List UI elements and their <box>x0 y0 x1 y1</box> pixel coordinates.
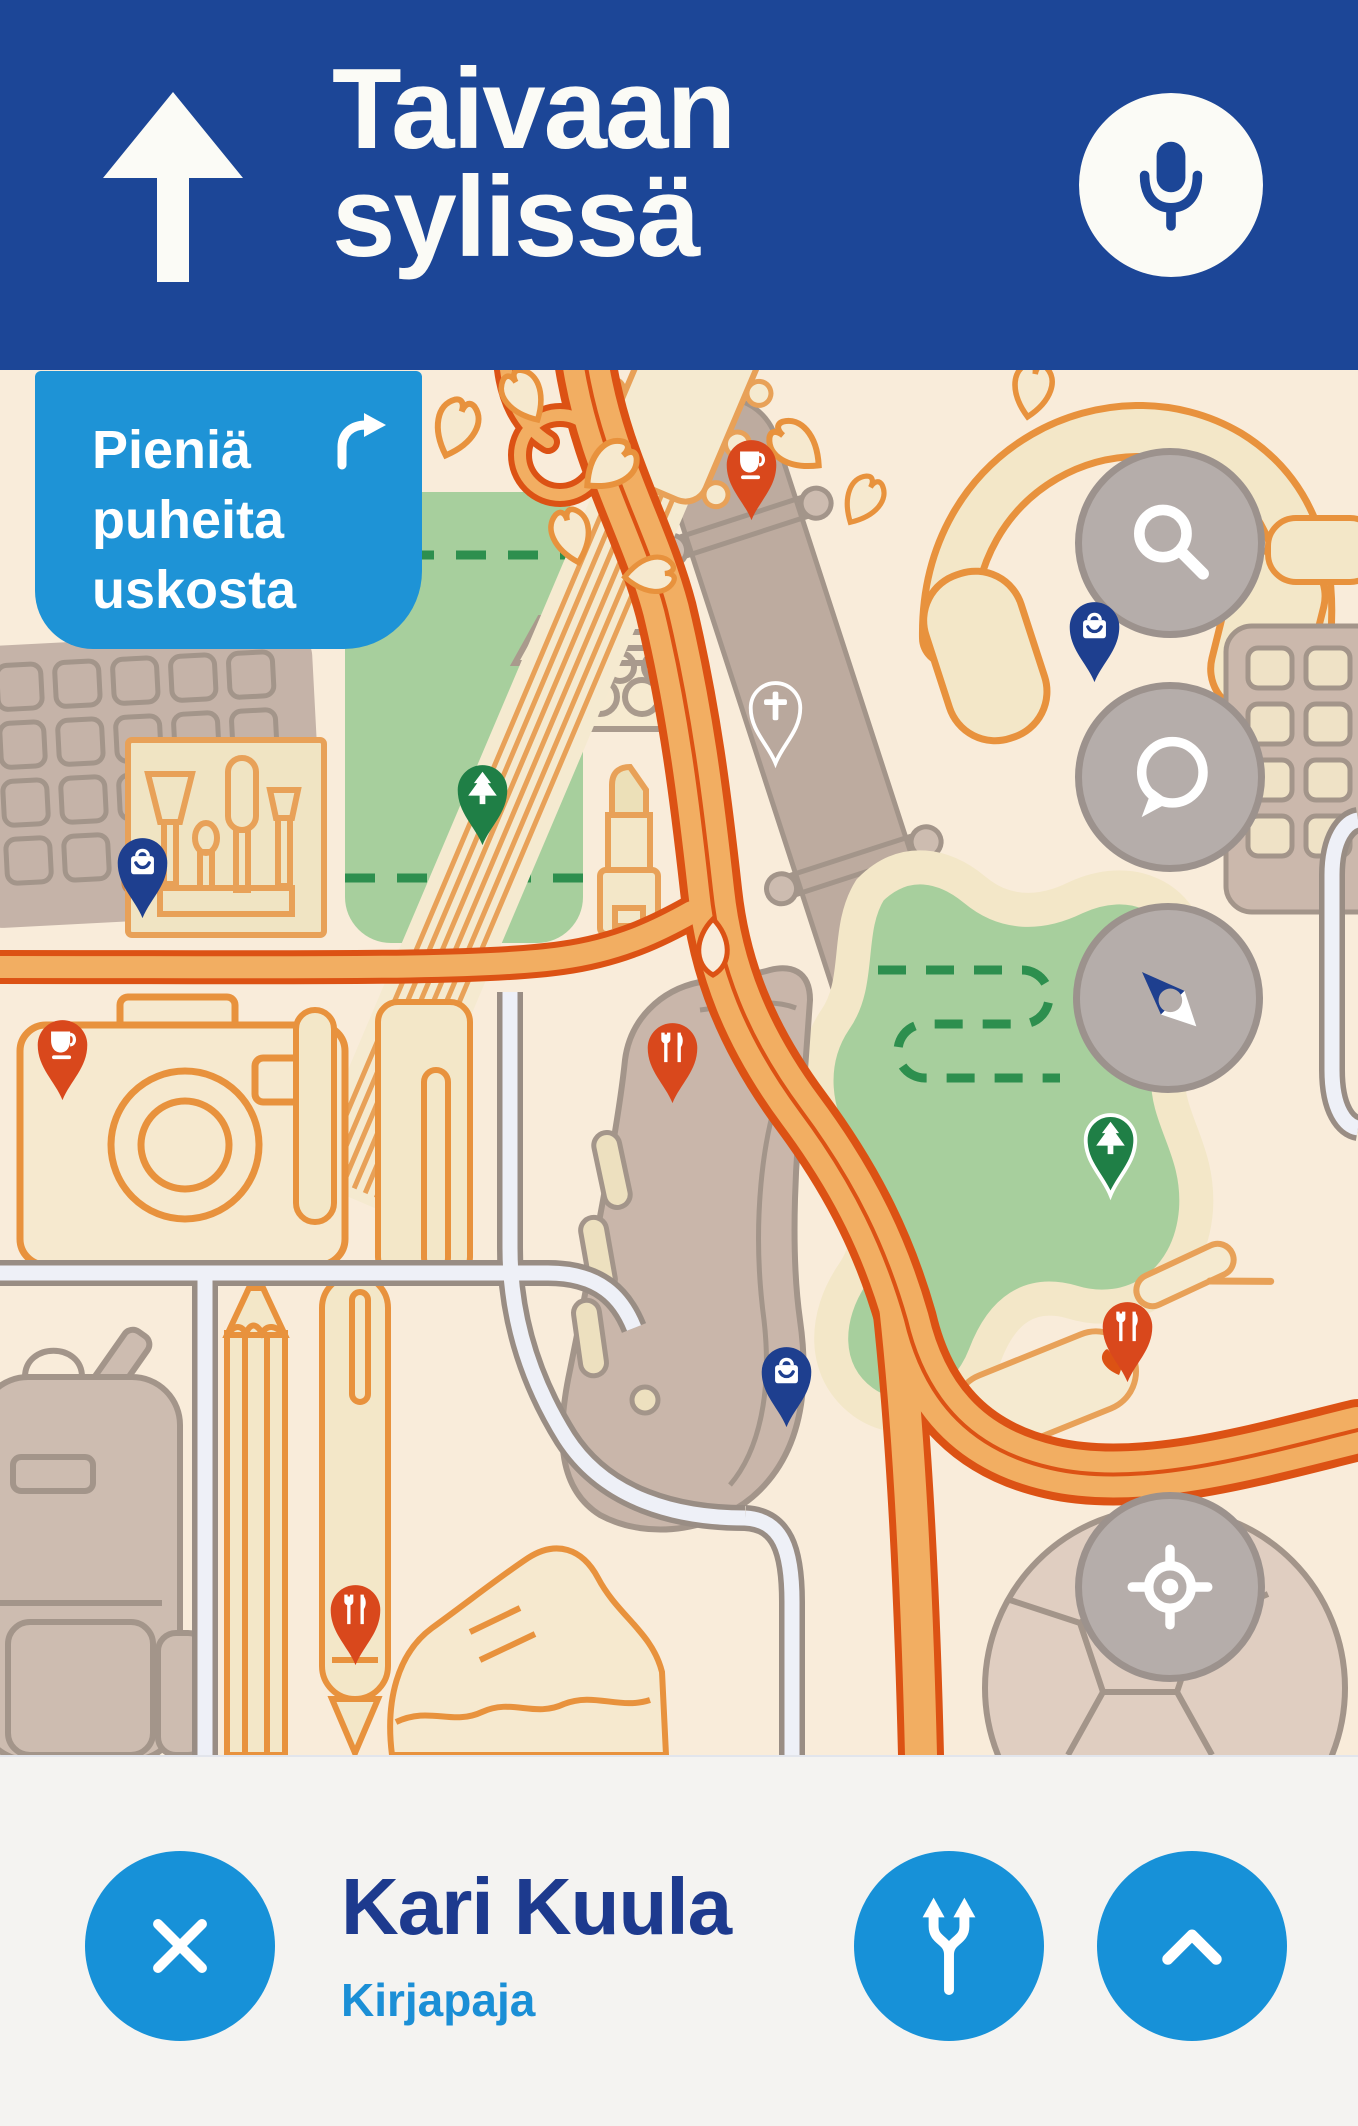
bottom-sheet: Kari Kuula Kirjapaja <box>0 1755 1358 2126</box>
map-pin-restaurant[interactable] <box>1097 1298 1158 1390</box>
chevron-up-icon <box>1137 1891 1247 2001</box>
header: Taivaan sylissä <box>0 0 1358 370</box>
straight-ahead-arrow-icon <box>103 90 243 282</box>
map-pin-church[interactable] <box>745 679 806 771</box>
search-icon <box>1111 484 1229 602</box>
close-button[interactable] <box>85 1851 275 2041</box>
book-cover-app-screen: Taivaan sylissä Pieniä puheita uskosta <box>0 0 1358 2126</box>
map-pin-restaurant[interactable] <box>325 1581 386 1673</box>
expand-button[interactable] <box>1097 1851 1287 2041</box>
compass-icon <box>1109 939 1227 1057</box>
map-pin-shopping[interactable] <box>112 834 173 926</box>
destination-info: Kari Kuula Kirjapaja <box>341 1861 731 2027</box>
map-pin-restaurant[interactable] <box>642 1019 703 1111</box>
landmark-pencil <box>227 1273 285 1755</box>
chat-button[interactable] <box>1075 682 1265 872</box>
chat-icon <box>1111 718 1229 836</box>
map-pin-park[interactable] <box>452 761 513 853</box>
map-pin-shopping[interactable] <box>756 1343 817 1435</box>
route-button[interactable] <box>854 1851 1044 2041</box>
locate-icon <box>1111 1528 1229 1646</box>
subtitle-callout[interactable]: Pieniä puheita uskosta <box>35 371 422 649</box>
subtitle-line-2: puheita <box>92 485 422 555</box>
map-pin-cafe[interactable] <box>721 436 782 528</box>
title-line-2: sylissä <box>332 164 734 272</box>
page-title: Taivaan sylissä <box>332 56 734 272</box>
map-pin-park[interactable] <box>1080 1111 1141 1203</box>
voice-search-button[interactable] <box>1079 93 1263 277</box>
turn-right-arrow-icon <box>328 411 388 471</box>
landmark-pen <box>322 1275 388 1753</box>
author-name: Kari Kuula <box>341 1861 731 1953</box>
subtitle-line-3: uskosta <box>92 555 422 625</box>
map-pin-shopping[interactable] <box>1064 598 1125 690</box>
locate-button[interactable] <box>1075 1492 1265 1682</box>
close-icon <box>125 1891 235 2001</box>
map-pin-cafe[interactable] <box>32 1016 93 1108</box>
publisher-name: Kirjapaja <box>341 1973 731 2027</box>
microphone-icon <box>1111 125 1231 245</box>
compass-button[interactable] <box>1073 903 1263 1093</box>
route-fork-icon <box>894 1891 1004 2001</box>
title-line-1: Taivaan <box>332 56 734 164</box>
